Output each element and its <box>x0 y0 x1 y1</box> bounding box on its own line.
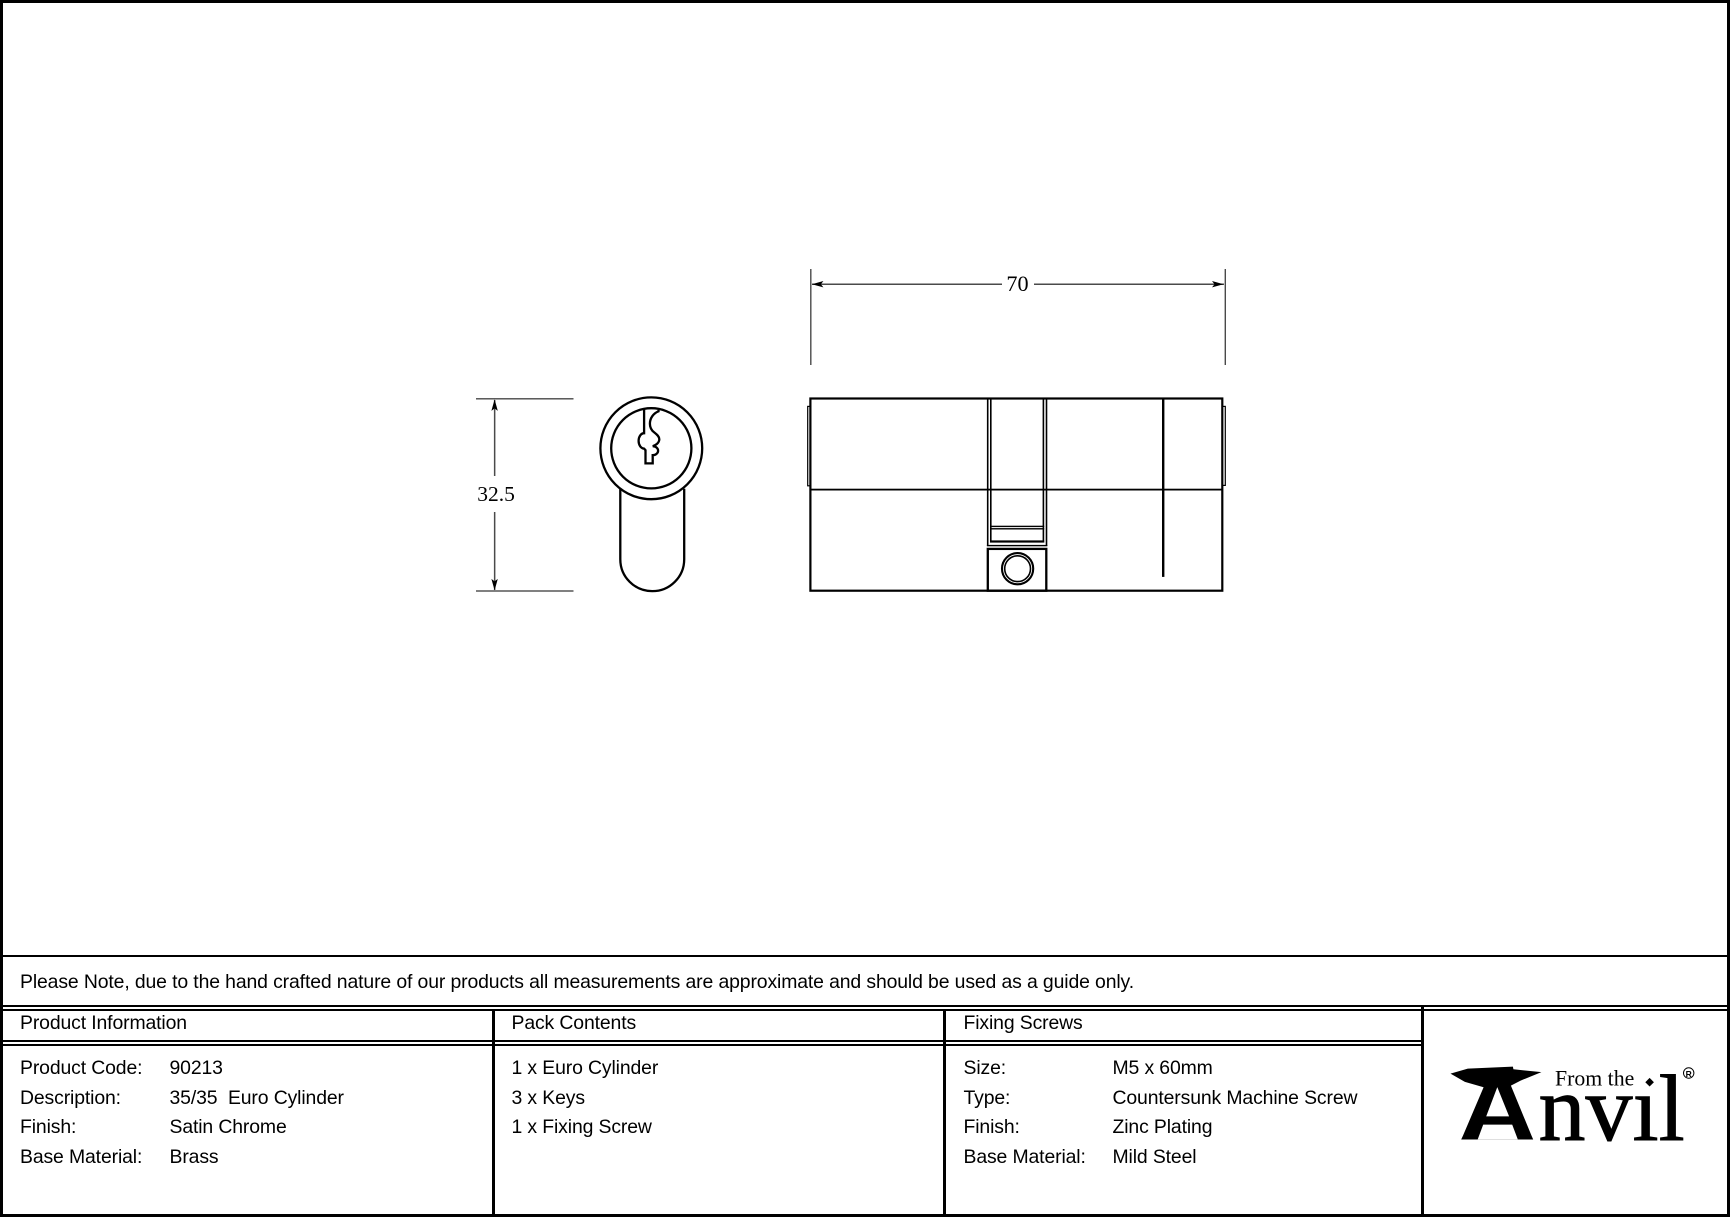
svg-text:70: 70 <box>1006 271 1028 296</box>
svg-text:32.5: 32.5 <box>477 482 515 506</box>
svg-text:R: R <box>1686 1069 1692 1079</box>
svg-text:nvıl: nvıl <box>1539 1057 1685 1161</box>
